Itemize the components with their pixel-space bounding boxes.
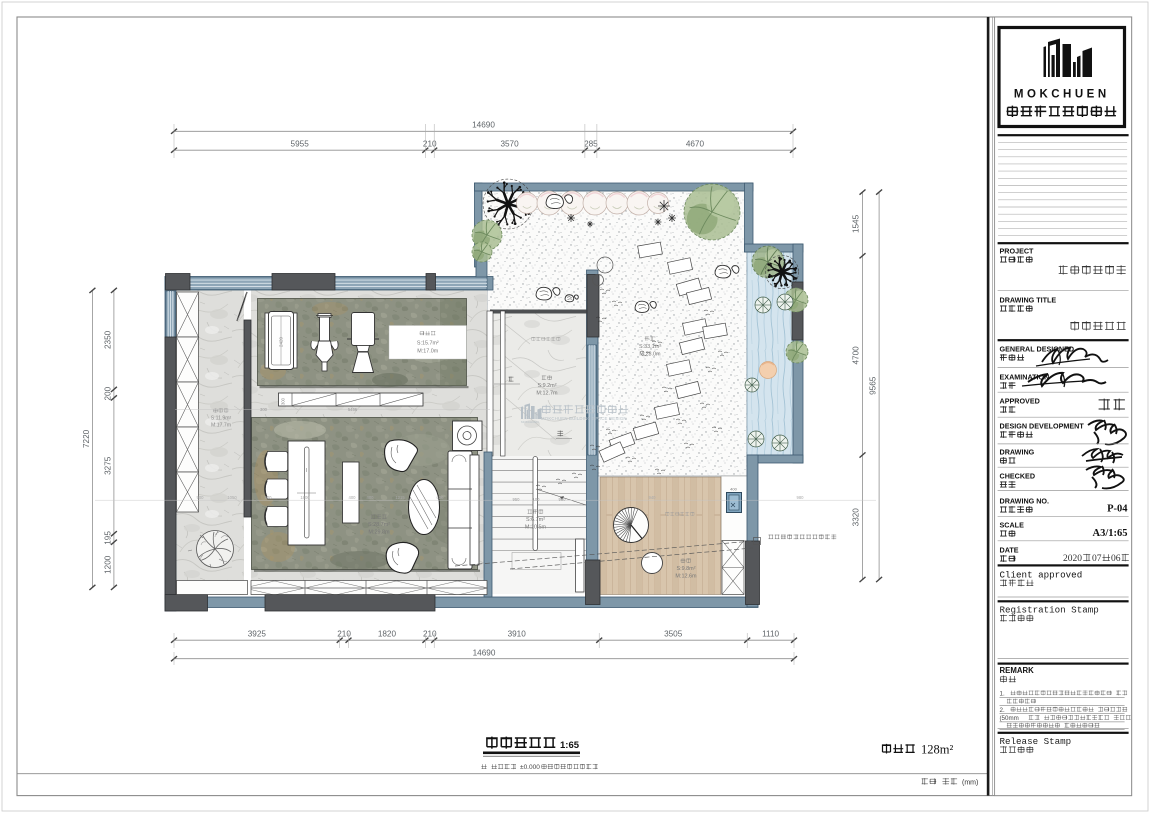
svg-text:210: 210	[423, 630, 437, 639]
svg-text:MOKCHUEN: MOKCHUEN	[1014, 89, 1110, 101]
svg-text:400: 400	[349, 495, 357, 500]
svg-text:DRAWING NO.: DRAWING NO.	[1000, 497, 1050, 506]
svg-text:195: 195	[104, 531, 113, 545]
svg-text:5955: 5955	[291, 140, 310, 149]
svg-text:CHECKED: CHECKED	[1000, 472, 1036, 481]
svg-text:Release Stamp: Release Stamp	[1000, 736, 1072, 747]
svg-text:M:12.6m: M:12.6m	[675, 574, 697, 580]
svg-text:MOKCHUEN: MOKCHUEN	[521, 420, 539, 424]
svg-text:3505: 3505	[664, 630, 683, 639]
svg-text:300: 300	[281, 397, 286, 405]
svg-text:14690: 14690	[472, 121, 495, 130]
svg-text:(mm): (mm)	[962, 780, 978, 787]
svg-text:400: 400	[730, 487, 737, 492]
svg-text:200: 200	[104, 386, 113, 400]
svg-text:3320: 3320	[852, 508, 861, 527]
svg-text:14690: 14690	[473, 649, 496, 658]
svg-text:940: 940	[649, 495, 657, 500]
svg-text:S:6.7m²: S:6.7m²	[526, 517, 545, 523]
svg-text:1800: 1800	[300, 495, 310, 500]
svg-text:M:28.0m: M:28.0m	[639, 352, 661, 358]
svg-text:M:17.0m: M:17.0m	[417, 349, 438, 355]
svg-text:950: 950	[513, 497, 521, 502]
svg-text:3275: 3275	[104, 456, 113, 475]
svg-text:1545: 1545	[852, 214, 861, 233]
svg-text:400: 400	[367, 495, 375, 500]
svg-text:M:10.5m: M:10.5m	[525, 525, 547, 531]
svg-text:300: 300	[260, 407, 268, 412]
svg-text:2020: 2020	[1063, 554, 1082, 564]
svg-text:3570: 3570	[500, 140, 519, 149]
svg-text:DATE: DATE	[1000, 546, 1019, 555]
svg-text:3925: 3925	[248, 630, 267, 639]
svg-text:Client approved: Client approved	[1000, 570, 1083, 581]
svg-text:SCALE: SCALE	[1000, 521, 1025, 530]
svg-text:MOKCHUEN BUILDING SPACE DESIGN: MOKCHUEN BUILDING SPACE DESIGN	[541, 416, 627, 421]
svg-text:4670: 4670	[686, 140, 705, 149]
svg-text:1820: 1820	[378, 630, 397, 639]
svg-text:Registration Stamp: Registration Stamp	[1000, 605, 1099, 616]
svg-text:PROJECT: PROJECT	[1000, 247, 1035, 256]
svg-text:100: 100	[533, 497, 541, 502]
svg-text:REMARK: REMARK	[1000, 666, 1035, 675]
svg-text:9565: 9565	[869, 376, 878, 395]
svg-text:P-04: P-04	[1107, 504, 1128, 515]
svg-text:620: 620	[437, 495, 445, 500]
svg-text:S:9.8m²: S:9.8m²	[676, 566, 695, 572]
svg-text:S:28.7m²: S:28.7m²	[368, 522, 390, 528]
svg-text:±0.000: ±0.000	[520, 764, 540, 771]
svg-text:210: 210	[423, 140, 437, 149]
svg-text:2.: 2.	[1000, 707, 1005, 714]
svg-text:210: 210	[337, 630, 351, 639]
svg-text:2350: 2350	[104, 330, 113, 349]
svg-text:S:9.2m²: S:9.2m²	[537, 383, 556, 389]
svg-text:5455: 5455	[348, 407, 358, 412]
svg-text:1:65: 1:65	[560, 740, 580, 751]
svg-text:1050: 1050	[227, 495, 237, 500]
svg-text:2420: 2420	[279, 336, 284, 347]
svg-text:(50mm: (50mm	[1000, 715, 1019, 722]
svg-text:S:11.9m²: S:11.9m²	[211, 415, 232, 421]
svg-text:S:33.1m²: S:33.1m²	[639, 344, 661, 350]
svg-text:1110: 1110	[762, 630, 779, 639]
svg-text:1200: 1200	[104, 555, 113, 574]
svg-text:S:15.7m²: S:15.7m²	[417, 341, 439, 347]
svg-text:06: 06	[1111, 554, 1121, 564]
svg-text:4700: 4700	[852, 346, 861, 365]
svg-text:GENERAL DESIGNED: GENERAL DESIGNED	[1000, 345, 1075, 354]
svg-text:285: 285	[584, 140, 598, 149]
svg-text:M:29.8m: M:29.8m	[368, 530, 390, 536]
svg-text:950: 950	[559, 497, 567, 502]
svg-text:M:12.7m: M:12.7m	[536, 391, 558, 397]
svg-text:APPROVED: APPROVED	[1000, 397, 1040, 406]
svg-text:A3/1:65: A3/1:65	[1093, 528, 1128, 539]
svg-text:07: 07	[1092, 554, 1102, 564]
svg-text:1.: 1.	[1000, 690, 1005, 697]
svg-text:128m²: 128m²	[921, 743, 953, 757]
svg-text:980: 980	[797, 495, 805, 500]
svg-text:DRAWING: DRAWING	[1000, 448, 1035, 457]
svg-text:DESIGN DEVELOPMENT: DESIGN DEVELOPMENT	[1000, 422, 1085, 431]
svg-text:7220: 7220	[82, 429, 91, 448]
svg-text:3910: 3910	[508, 630, 527, 639]
svg-text:M:17.7m: M:17.7m	[211, 422, 231, 428]
svg-text:900: 900	[197, 495, 205, 500]
svg-text:1215: 1215	[395, 495, 405, 500]
svg-text:900: 900	[265, 495, 273, 500]
svg-text:DRAWING TITLE: DRAWING TITLE	[1000, 296, 1057, 305]
